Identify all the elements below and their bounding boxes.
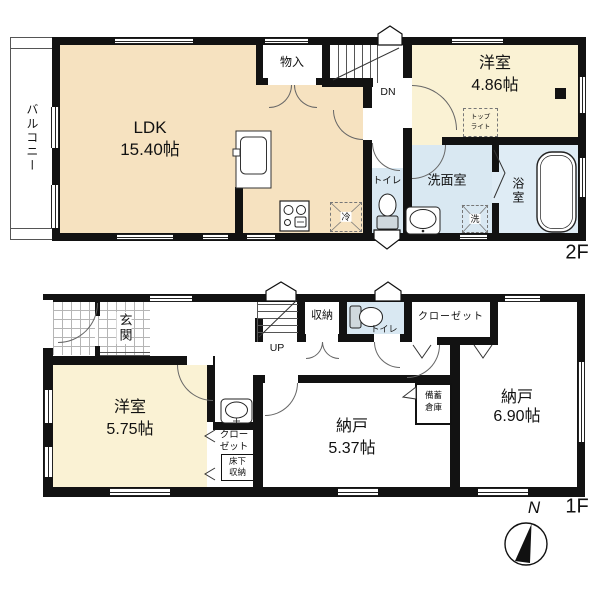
floor1-label: 1F bbox=[565, 496, 588, 519]
storeroom-b-label: 納戸 bbox=[501, 389, 533, 407]
floor2-label: 2F bbox=[565, 242, 588, 265]
storeroom-a-label: 納戸 bbox=[336, 418, 368, 436]
fridge-label: 冷 bbox=[340, 212, 351, 222]
stockpile-label: 倉庫 bbox=[425, 403, 442, 413]
stair-arrow-pentagon-1f bbox=[266, 282, 401, 301]
compass-north-label: N bbox=[528, 498, 540, 518]
monoire-label: 物入 bbox=[280, 56, 304, 70]
stair-diagonal-2f bbox=[333, 48, 399, 80]
toplight-label: トップ bbox=[471, 113, 491, 120]
floor-plan: バルコニー LDK 15.40帖 物入 DN 洋室 4.86帖 トップ ライト … bbox=[0, 0, 600, 600]
down-arrow-pentagon-2f bbox=[374, 230, 400, 249]
closet-western-label: ゼット bbox=[220, 443, 249, 454]
toilet-2f-label: トイレ bbox=[373, 177, 402, 188]
washer-label: 洗 bbox=[469, 214, 480, 224]
stairs-down-label: DN bbox=[380, 86, 395, 98]
bathtub-icon bbox=[537, 152, 576, 232]
closet-folding-doors-hall bbox=[413, 345, 492, 358]
stairs-up-label: UP bbox=[270, 342, 285, 354]
bath-folding-door bbox=[494, 150, 505, 198]
ldk-label: LDK bbox=[133, 118, 166, 138]
compass bbox=[505, 523, 547, 565]
stockpile-label: 備蓄 bbox=[425, 391, 442, 401]
washroom-label: 洗面室 bbox=[427, 174, 466, 189]
western-room-2f-label: 洋室 bbox=[479, 55, 511, 73]
closet-western-label: クロー bbox=[220, 431, 249, 442]
washbasin-icon-1f bbox=[221, 399, 252, 424]
kitchen-sink-icon bbox=[233, 131, 271, 188]
western-room-1f-size-label: 5.75帖 bbox=[106, 421, 153, 439]
western-room-1f-label: 洋室 bbox=[114, 399, 146, 417]
washbasin-icon-2f bbox=[406, 207, 440, 234]
toplight-label: ライト bbox=[471, 123, 491, 130]
storeroom-a-size-label: 5.37帖 bbox=[328, 440, 375, 458]
entrance-label: 玄関 bbox=[117, 312, 132, 344]
stockpile-door-mark bbox=[403, 387, 416, 399]
closet-hall-label: クローゼット bbox=[418, 311, 484, 323]
stair-diagonal-1f bbox=[259, 300, 297, 337]
stove-icon bbox=[280, 201, 309, 231]
storage-1f-label: 収納 bbox=[311, 310, 333, 323]
balcony-label: バルコニー bbox=[24, 103, 38, 173]
underfloor-storage-label: 床下 bbox=[229, 457, 246, 467]
closet-folding-doors-western bbox=[205, 430, 215, 480]
bathroom-label: 浴室 bbox=[510, 177, 524, 205]
ldk-size-label: 15.40帖 bbox=[120, 140, 180, 160]
underfloor-storage-label: 収納 bbox=[229, 468, 246, 478]
storeroom-b-size-label: 6.90帖 bbox=[493, 408, 540, 426]
stair-arrow-pentagon-2f bbox=[378, 26, 402, 45]
toilet-icon-2f bbox=[377, 194, 398, 229]
toilet-1f-label: トイレ bbox=[370, 324, 397, 334]
western-room-2f-size-label: 4.86帖 bbox=[471, 77, 518, 95]
